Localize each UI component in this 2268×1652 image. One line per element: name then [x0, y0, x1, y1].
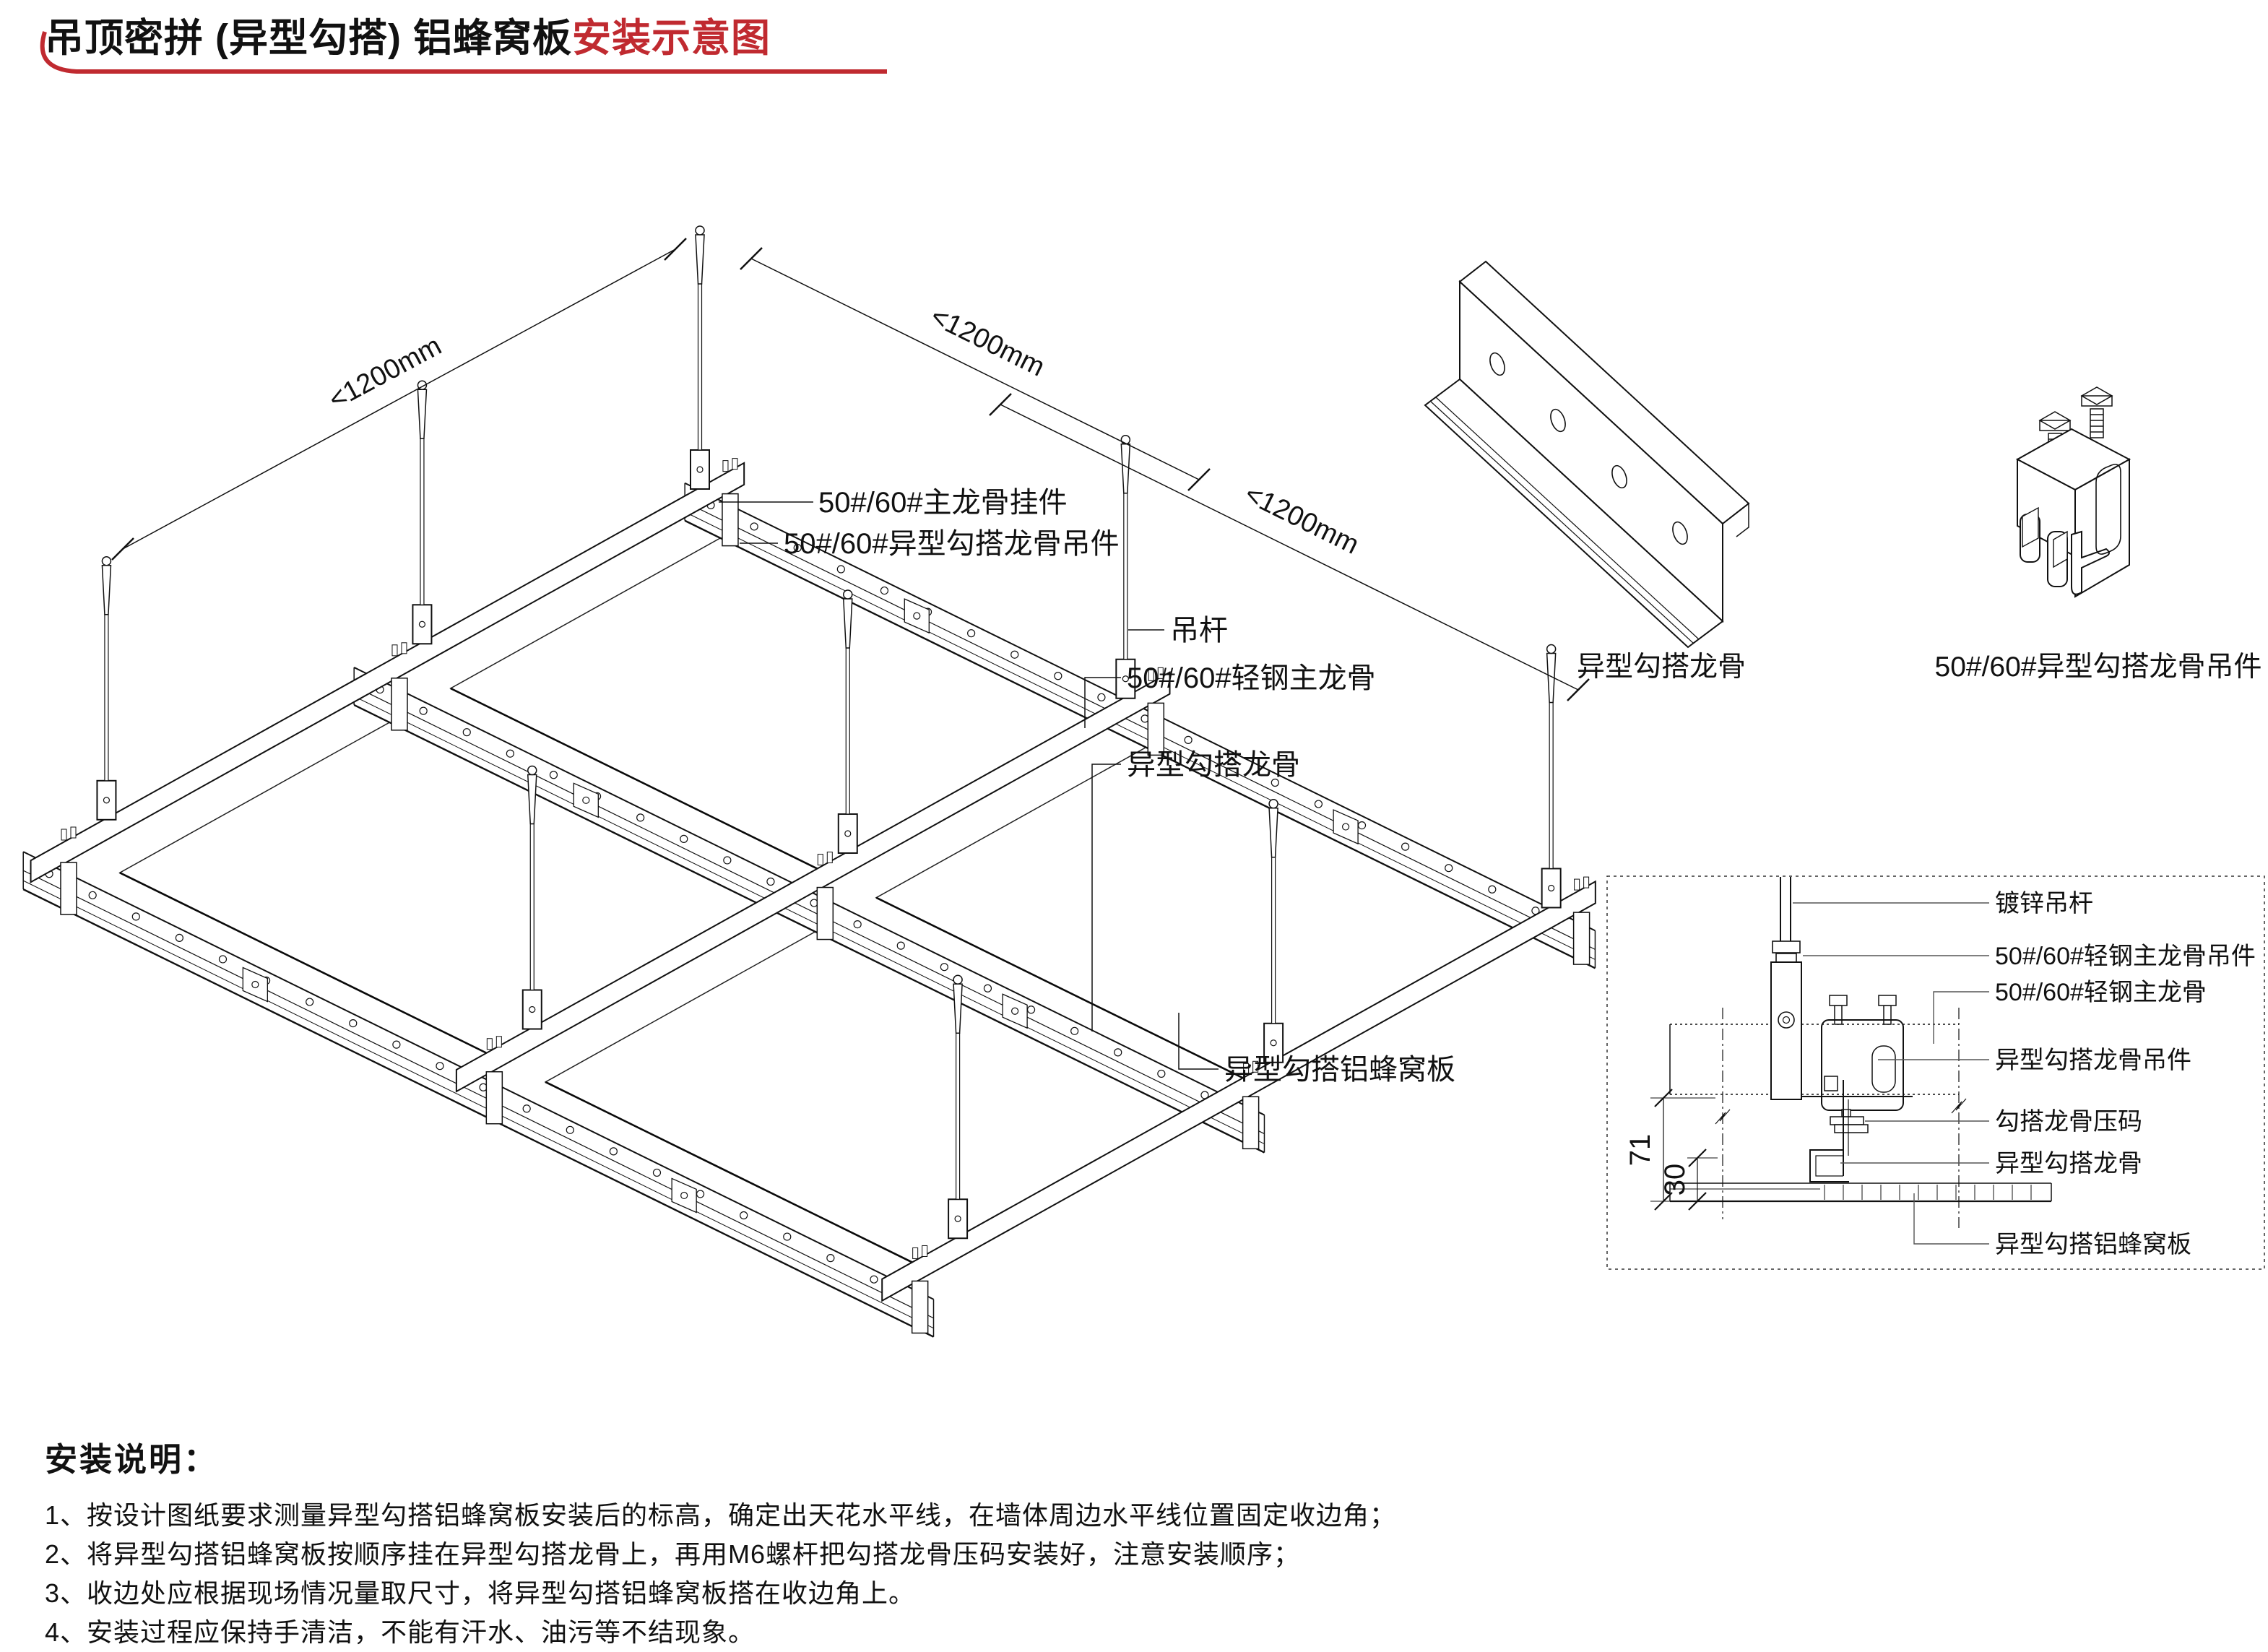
detail-label-hook-keel-clip: 异型勾搭龙骨吊件	[1995, 1047, 2191, 1074]
page-title-main: 吊顶密拼 (异型勾搭) 铝蜂窝板	[45, 17, 572, 60]
detail-dim-overall: 71	[1624, 1134, 1656, 1167]
note-item-4: 4、安装过程应保持手清洁，不能有汗水、油污等不结现象。	[45, 1613, 1417, 1652]
detail-label-galvanized-rod: 镀锌吊杆	[1995, 890, 2093, 917]
note-item-2: 2、将异型勾搭铝蜂窝板按顺序挂在异型勾搭龙骨上，再用M6螺杆把勾搭龙骨压码安装好…	[45, 1535, 1417, 1574]
component-keel-clip	[2017, 387, 2129, 597]
label-hook-keel-clip: 50#/60#异型勾搭龙骨吊件	[784, 528, 1120, 560]
label-light-steel-main-keel: 50#/60#轻钢主龙骨	[1127, 662, 1376, 694]
notes-heading: 安装说明：	[45, 1433, 1417, 1480]
label-hanger-rod: 吊杆	[1170, 615, 1228, 646]
detail-label-hook-keel: 异型勾搭龙骨	[1995, 1150, 2142, 1177]
detail-label-keel-clamp: 勾搭龙骨压码	[1995, 1108, 2142, 1136]
note-item-1: 1、按设计图纸要求测量异型勾搭铝蜂窝板安装后的标高，确定出天花水平线，在墙体周边…	[45, 1496, 1417, 1535]
detail-dim-keel: 30	[1659, 1164, 1691, 1196]
installation-notes: 安装说明： 1、按设计图纸要求测量异型勾搭铝蜂窝板安装后的标高，确定出天花水平线…	[45, 1433, 1417, 1652]
caption-hook-keel: 异型勾搭龙骨	[1577, 652, 1746, 683]
detail-label-main-keel: 50#/60#轻钢主龙骨	[1995, 979, 2207, 1006]
label-hook-keel: 异型勾搭龙骨	[1127, 749, 1300, 781]
component-hook-keel	[1425, 261, 1749, 647]
detail-label-honeycomb-panel: 异型勾搭铝蜂窝板	[1995, 1231, 2191, 1258]
label-main-keel-hanger: 50#/60#主龙骨挂件	[818, 487, 1068, 519]
dim-right: <1200mm	[1240, 479, 1364, 561]
note-item-3: 3、收边处应根据现场情况量取尺寸，将异型勾搭铝蜂窝板搭在收边角上。	[45, 1574, 1417, 1613]
page-title: 吊顶密拼 (异型勾搭) 铝蜂窝板安装示意图	[45, 6, 771, 63]
detail-section: 71 30 镀锌吊杆 50#/60#轻钢主龙骨吊件 50#/60#轻钢主龙骨 异…	[1607, 876, 2264, 1269]
caption-keel-clip: 50#/60#异型勾搭龙骨吊件	[1935, 652, 2262, 683]
dim-top: <1200mm	[926, 301, 1049, 383]
dim-left: <1200mm	[324, 331, 446, 416]
page-title-highlight: 安装示意图	[572, 17, 771, 60]
honeycomb-hatch	[1825, 1185, 2031, 1200]
installation-diagram: <1200mm <1200mm <1200mm 50#/60#主龙骨挂件 50#…	[0, 0, 2268, 1641]
label-honeycomb-panel: 异型勾搭铝蜂窝板	[1224, 1054, 1455, 1086]
detail-label-main-keel-hanger: 50#/60#轻钢主龙骨吊件	[1995, 943, 2256, 970]
